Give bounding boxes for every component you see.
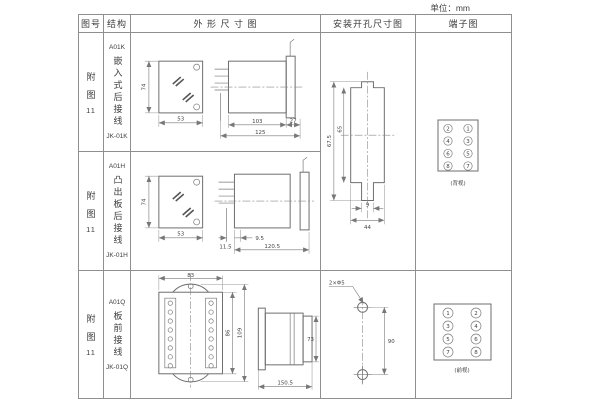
hole-callout-label: 2×Φ5 — [329, 281, 345, 287]
front-view: 74 53 — [141, 176, 202, 242]
terminal-number: 5 — [446, 337, 450, 343]
mounting-cell-rows12: 67.5 65 9 44 — [321, 33, 416, 271]
terminal-circles: 1 2 3 4 5 6 7 8 — [443, 308, 481, 357]
terminal-number: 6 — [474, 337, 478, 343]
terminal-number: 2 — [446, 126, 450, 132]
fig-no-line: 图 — [86, 207, 95, 220]
terminal-number: 2 — [474, 311, 478, 317]
page: 单位：mm 图号 结构 外 形 尺 寸 图 安装开孔尺寸图 端子图 附 图 11… — [0, 0, 600, 400]
mounting-drawing-rows12: 67.5 65 9 44 — [321, 33, 415, 271]
fig-no-line: 图 — [86, 88, 95, 101]
fig-no-line: 附 — [86, 70, 95, 83]
structure-label: 凸出板后接线 — [113, 175, 122, 247]
dim-label: 27 — [290, 118, 297, 124]
dim-label: 103 — [252, 118, 263, 124]
terminal-number: 3 — [466, 139, 470, 145]
front-view: 74 53 — [141, 61, 202, 127]
dim-label: 11.5 — [219, 244, 231, 250]
terminal-number: 5 — [466, 151, 470, 157]
header-fig-no: 图号 — [79, 15, 104, 33]
dim-label: 86 — [225, 329, 231, 336]
terminal-number: 3 — [446, 324, 450, 330]
terminal-number: 8 — [474, 350, 478, 356]
header-mounting: 安装开孔尺寸图 — [321, 15, 416, 33]
outline-drawing-a01h: 74 53 9.5 11.5 — [131, 152, 320, 271]
mounting-cell-row3: 90 2×Φ5 — [321, 271, 416, 398]
terminal-number: 1 — [466, 126, 470, 132]
structure-cell-row2: A01H 凸出板后接线 JK-01H — [104, 152, 131, 271]
header-structure: 结构 — [104, 15, 131, 33]
side-view: 103 27 125 — [211, 39, 303, 138]
type-code-label: JK-01Q — [106, 364, 128, 371]
front-view: 83 86 109 — [159, 273, 249, 388]
structure-label: 板前接线 — [113, 311, 122, 359]
structure-cell-row3: A01Q 板前接线 JK-01Q — [104, 271, 131, 398]
outline-drawing-a01k: 74 53 103 27 — [131, 33, 320, 152]
fig-no-cell-row2: 附 图 11 — [79, 152, 104, 271]
terminal-number: 6 — [446, 151, 450, 157]
side-view: 73 150.5 — [258, 308, 319, 390]
fig-no-line: 附 — [86, 312, 95, 325]
fig-no-number: 11 — [86, 348, 96, 357]
dim-label: 109 — [237, 327, 243, 338]
view-caption: (前视) — [454, 366, 469, 374]
terminal-number: 4 — [474, 324, 478, 330]
mounting-drawing-row3: 90 2×Φ5 — [321, 271, 415, 398]
fig-no-number: 11 — [86, 225, 96, 234]
dim-label: 9.5 — [255, 235, 264, 241]
spec-table: 图号 结构 外 形 尺 寸 图 安装开孔尺寸图 端子图 附 图 11 附 图 1… — [78, 14, 512, 399]
terminal-number: 7 — [466, 164, 470, 170]
dim-label: 74 — [141, 198, 147, 205]
structure-cell-row1: A01K 嵌入式后接线 JK-01K — [104, 33, 131, 152]
terminal-circles: 2 1 4 3 6 5 8 7 — [444, 124, 472, 170]
terminal-cell-rows12: 2 1 4 3 6 5 8 7 (背视) — [416, 33, 511, 271]
terminal-number: 7 — [446, 350, 450, 356]
model-label: A01K — [109, 44, 125, 51]
fig-no-line: 附 — [86, 189, 95, 202]
dim-label: 53 — [177, 116, 184, 122]
terminal-diagram-front: 1 2 3 4 5 6 7 8 (前视) — [416, 271, 511, 398]
outline-cell-row1: 74 53 103 27 — [131, 33, 321, 152]
type-code-label: JK-01H — [106, 252, 128, 259]
dim-label: 83 — [187, 273, 194, 279]
dim-label: 9 — [366, 202, 370, 208]
fig-no-line: 图 — [86, 330, 95, 343]
terminal-number: 1 — [446, 311, 450, 317]
outline-drawing-a01q: 83 86 109 73 — [131, 271, 320, 398]
dim-label: 44 — [364, 225, 371, 231]
model-label: A01H — [109, 163, 125, 170]
dim-label: 74 — [141, 83, 147, 90]
dim-label: 67.5 — [327, 135, 333, 147]
fig-no-cell-row1: 附 图 11 — [79, 33, 104, 152]
view-caption: (背视) — [450, 179, 465, 187]
fig-no-number: 11 — [86, 106, 96, 115]
dim-label: 73 — [307, 337, 314, 343]
header-outline: 外 形 尺 寸 图 — [131, 15, 321, 33]
model-label: A01Q — [109, 299, 126, 306]
side-view: 9.5 11.5 120.5 — [215, 157, 314, 253]
terminal-number: 8 — [446, 164, 450, 170]
terminal-number: 4 — [446, 139, 450, 145]
structure-label: 嵌入式后接线 — [113, 56, 122, 128]
outline-cell-row3: 83 86 109 73 — [131, 271, 321, 398]
dim-label: 90 — [388, 339, 395, 345]
dim-label: 150.5 — [277, 381, 293, 387]
dim-label: 53 — [177, 231, 184, 237]
type-code-label: JK-01K — [106, 133, 127, 140]
terminal-cell-row3: 1 2 3 4 5 6 7 8 (前视) — [416, 271, 511, 398]
fig-no-cell-row3: 附 图 11 — [79, 271, 104, 398]
outline-cell-row2: 74 53 9.5 11.5 — [131, 152, 321, 271]
header-terminal: 端子图 — [416, 15, 511, 33]
dim-label: 65 — [337, 125, 343, 132]
dim-label: 120.5 — [264, 243, 280, 249]
terminal-diagram-rear: 2 1 4 3 6 5 8 7 (背视) — [416, 33, 511, 271]
dim-label: 125 — [255, 129, 265, 135]
unit-label: 单位：mm — [390, 2, 470, 14]
